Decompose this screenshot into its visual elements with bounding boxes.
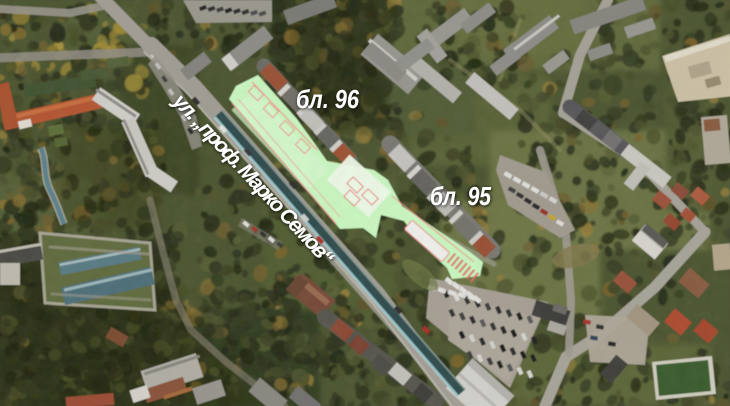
svg-text:бл. 96: бл. 96 [296,84,359,114]
svg-text:бл. 95: бл. 95 [430,181,491,211]
